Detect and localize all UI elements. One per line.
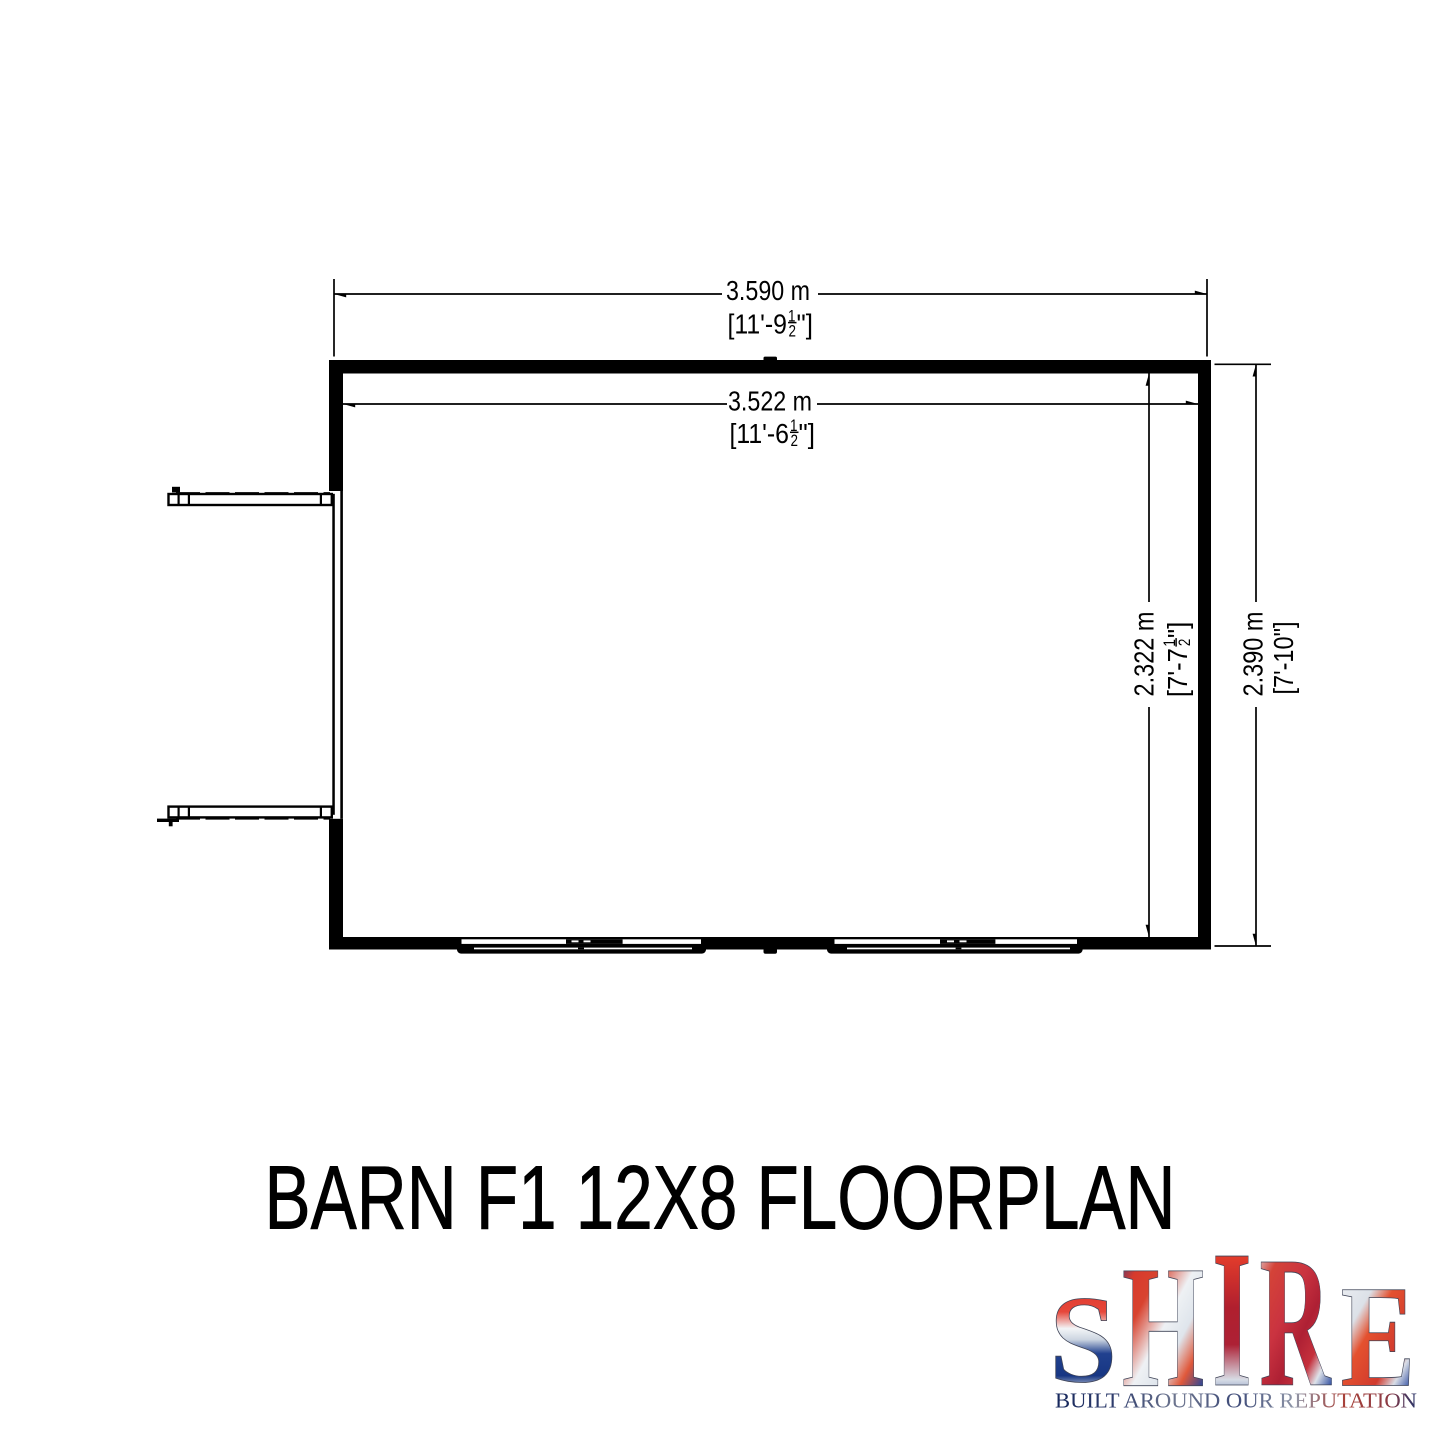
- svg-text:[11'-9: [11'-9: [728, 308, 788, 339]
- svg-text:BARN F1 12X8 FLOORPLAN: BARN F1 12X8 FLOORPLAN: [265, 1149, 1176, 1249]
- svg-text:2: 2: [789, 321, 797, 340]
- svg-text:2.322 m: 2.322 m: [1128, 612, 1159, 697]
- svg-text:2.390 m: 2.390 m: [1237, 612, 1268, 697]
- svg-text:2: 2: [791, 431, 799, 450]
- svg-text:"]: "]: [799, 418, 816, 449]
- svg-text:[7'-7: [7'-7: [1162, 648, 1193, 697]
- svg-text:3.522 m: 3.522 m: [728, 385, 812, 416]
- svg-text:"]: "]: [1162, 622, 1193, 639]
- svg-text:[11'-6: [11'-6: [730, 418, 790, 449]
- svg-text:[7'-10"]: [7'-10"]: [1268, 622, 1299, 695]
- svg-text:2: 2: [1175, 639, 1194, 647]
- svg-text:3.590 m: 3.590 m: [726, 275, 810, 306]
- svg-text:BUILT AROUND OUR REPUTATION: BUILT AROUND OUR REPUTATION: [1055, 1389, 1417, 1413]
- svg-text:"]: "]: [797, 308, 814, 339]
